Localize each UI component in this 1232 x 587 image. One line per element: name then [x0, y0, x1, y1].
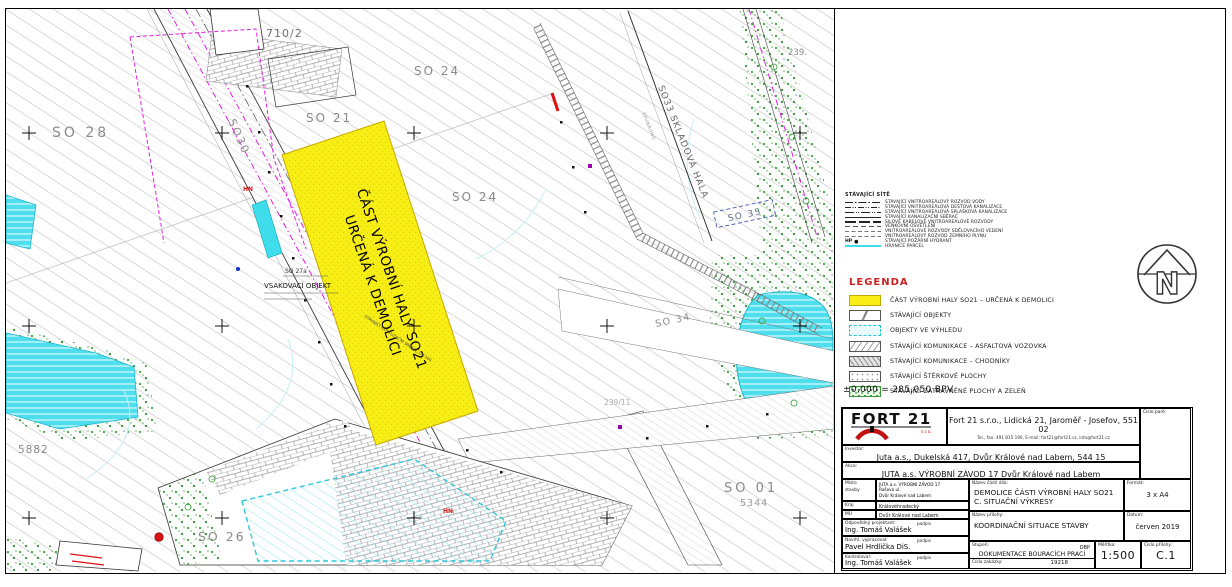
- responsible-designer-name: Ing. Tomáš Valášek: [845, 526, 912, 534]
- checker-cell: Kontroloval: podpis Ing. Tomáš Valášek: [842, 553, 969, 569]
- investor-cell: Investor: Juta a.s., Dukelská 417, Dvůr …: [842, 445, 1140, 462]
- site-plan-map: SO 35 SO 28 710/2 SO 21 SO 24 SO 24 SO30…: [6, 9, 835, 573]
- label-so21: SO 21: [306, 111, 352, 125]
- sheet-number-cell: Číslo přílohy: C.1: [1141, 541, 1191, 569]
- hydrant-marker: [155, 533, 163, 541]
- drawing-part-cell: Název části díla: DEMOLICE ČÁSTI VÝROBNÍ…: [969, 479, 1124, 511]
- swatch-gravel-icon: [849, 371, 881, 382]
- municipality-value-cell: Dvůr Králové nad Labem: [876, 510, 969, 519]
- stage-code: DBP: [1080, 545, 1090, 551]
- north-letter: N: [1154, 267, 1179, 302]
- checker-name: Ing. Tomáš Valášek: [845, 559, 912, 567]
- legend-title: LEGENDA: [849, 277, 1179, 288]
- label-hn-2: HN: [443, 508, 453, 515]
- author-cell: Navrhl, vypracoval: podpis Pavel Hrdličk…: [842, 536, 969, 553]
- project-value: JUTA a.s. VÝROBNÍ ZÁVOD 17 Dvůr Králové …: [843, 470, 1139, 479]
- hydrant-symbol-icon: HP●: [845, 239, 881, 245]
- date-cell: Datum: červen 2019: [1124, 511, 1191, 541]
- elevation-note: ±0,000 = 285,050 BPV: [843, 385, 953, 395]
- title-block: FORT 21 s.r.o. Fort 21 s.r.o., Lidická 2…: [841, 407, 1193, 571]
- company-address: Fort 21 s.r.o., Lidická 21, Jaroměř - Jo…: [948, 416, 1139, 434]
- date-value: červen 2019: [1125, 523, 1190, 531]
- copy-number-cell: Číslo paré:: [1140, 408, 1191, 479]
- author-name: Pavel Hrdlička DiS.: [845, 543, 910, 551]
- label-hn-1: HN: [243, 186, 253, 193]
- label-239: 239.: [788, 48, 807, 58]
- label-so24b: SO 24: [452, 190, 498, 204]
- part-title-line2: C. SITUAČNÍ VÝKRESY: [974, 497, 1123, 506]
- investor-value: Juta a.s., Dukelská 417, Dvůr Králové na…: [843, 453, 1139, 462]
- marker-blue: [236, 267, 240, 271]
- line-style-parcel-boundary-icon: [845, 245, 881, 247]
- line-style-water-icon: [845, 202, 881, 203]
- responsible-designer-cell: Odpovědný projektant: podpis Ing. Tomáš …: [842, 519, 969, 536]
- company-logo: FORT 21 s.r.o.: [842, 408, 947, 445]
- scale-cell: Měřítko: 1:500: [1095, 541, 1141, 569]
- line-style-lighting-icon: [845, 226, 881, 227]
- line-style-gas-icon: [845, 236, 881, 237]
- label-so26: SO 26: [198, 529, 246, 544]
- line-style-telecom-icon: [845, 231, 881, 232]
- company-info-cell: Fort 21 s.r.o., Lidická 21, Jaroměř - Jo…: [947, 408, 1140, 445]
- swatch-asphalt-icon: [849, 341, 881, 352]
- stage-cell: Stupeň: DBP DOKUMENTACE BOURACÍCH PRACÍ …: [969, 541, 1095, 569]
- legend-item: STÁVAJÍCÍ KOMUNIKACE – CHODNÍKY: [849, 354, 1179, 369]
- marker-purple: [618, 425, 622, 429]
- label-so01: SO 01: [724, 481, 778, 496]
- scale-value: 1:500: [1096, 549, 1140, 562]
- north-arrow: N: [1135, 242, 1199, 306]
- legend-item: STÁVAJÍCÍ ŠTĚRKOVÉ PLOCHY: [849, 369, 1179, 384]
- line-style-collector-icon: [845, 217, 881, 218]
- label-so28: SO 28: [52, 125, 109, 141]
- legend: LEGENDA ČÁST VÝROBNÍ HALY SO21 – URČENÁ …: [849, 277, 1179, 399]
- label-5882: 5882: [18, 444, 49, 456]
- drawing-name-value: KOORDINAČNÍ SITUACE STAVBY: [974, 521, 1123, 530]
- company-contact: Tel., fax: 491 815 190, E-mail: fort21@f…: [948, 435, 1139, 440]
- site-label-cell: Místo stavby: [842, 479, 876, 501]
- swatch-planned-objects-icon: [849, 325, 881, 336]
- drawing-name-cell: Název přílohy: KOORDINAČNÍ SITUACE STAVB…: [969, 511, 1124, 541]
- municipality-label-cell: MÚ: [842, 510, 876, 519]
- legend-item: ČÁST VÝROBNÍ HALY SO21 – URČENÁ K DEMOLI…: [849, 293, 1179, 308]
- label-vsak: VSAKOVACÍ OBJEKT: [264, 281, 332, 290]
- legend-item: STÁVAJÍCÍ OBJEKTY: [849, 308, 1179, 323]
- order-number-strip: Číslo zakázky: 19218: [970, 558, 1094, 568]
- part-title-line1: DEMOLICE ČÁSTI VÝROBNÍ HALY SO21: [974, 488, 1123, 497]
- order-number: 19218: [1051, 560, 1069, 566]
- swatch-existing-objects-icon: [849, 310, 881, 321]
- logo-text: FORT 21: [851, 410, 932, 428]
- label-so24a: SO 24: [414, 64, 460, 78]
- label-239-11: 239/11: [604, 398, 631, 407]
- networks-legend: STÁVAJÍCÍ SÍTĚ STÁVAJÍCÍ VNITROAREÁLOVÝ …: [845, 192, 1075, 249]
- line-style-sewage-icon: [845, 212, 881, 213]
- swatch-sidewalk-icon: [849, 356, 881, 367]
- legend-item: STÁVAJÍCÍ KOMUNIKACE – ASFALTOVÁ VOZOVKA: [849, 339, 1179, 354]
- region-value-cell: Královéhradecký: [876, 501, 969, 510]
- site-value-cell: JUTA a.s. VÝROBNÍ ZÁVOD 17Rašova ul.Dvůr…: [876, 479, 969, 501]
- format-cell: Formát: 3 x A4: [1124, 479, 1191, 511]
- line-style-power-icon: [845, 221, 881, 222]
- legend-item: OBJEKTY VE VÝHLEDU: [849, 323, 1179, 338]
- format-value: 3 x A4: [1125, 491, 1190, 499]
- stage-value: DOKUMENTACE BOURACÍCH PRACÍ: [970, 551, 1094, 558]
- drawing-sheet: { "map": { "hall": { "line1": "ČÁST VÝRO…: [0, 0, 1232, 587]
- logo-sub: s.r.o.: [921, 429, 932, 435]
- project-cell: Akce: JUTA a.s. VÝROBNÍ ZÁVOD 17 Dvůr Kr…: [842, 462, 1140, 479]
- label-5344: 5344: [740, 498, 768, 509]
- label-parcel710: 710/2: [266, 27, 303, 40]
- label-so27a: SO 27a: [285, 268, 307, 275]
- swatch-demolition-icon: [849, 295, 881, 306]
- sheet-number-value: C.1: [1142, 549, 1190, 562]
- networks-legend-title: STÁVAJÍCÍ SÍTĚ: [845, 192, 1075, 198]
- line-style-rainwater-icon: [845, 207, 881, 208]
- region-label-cell: Kraj: [842, 501, 876, 510]
